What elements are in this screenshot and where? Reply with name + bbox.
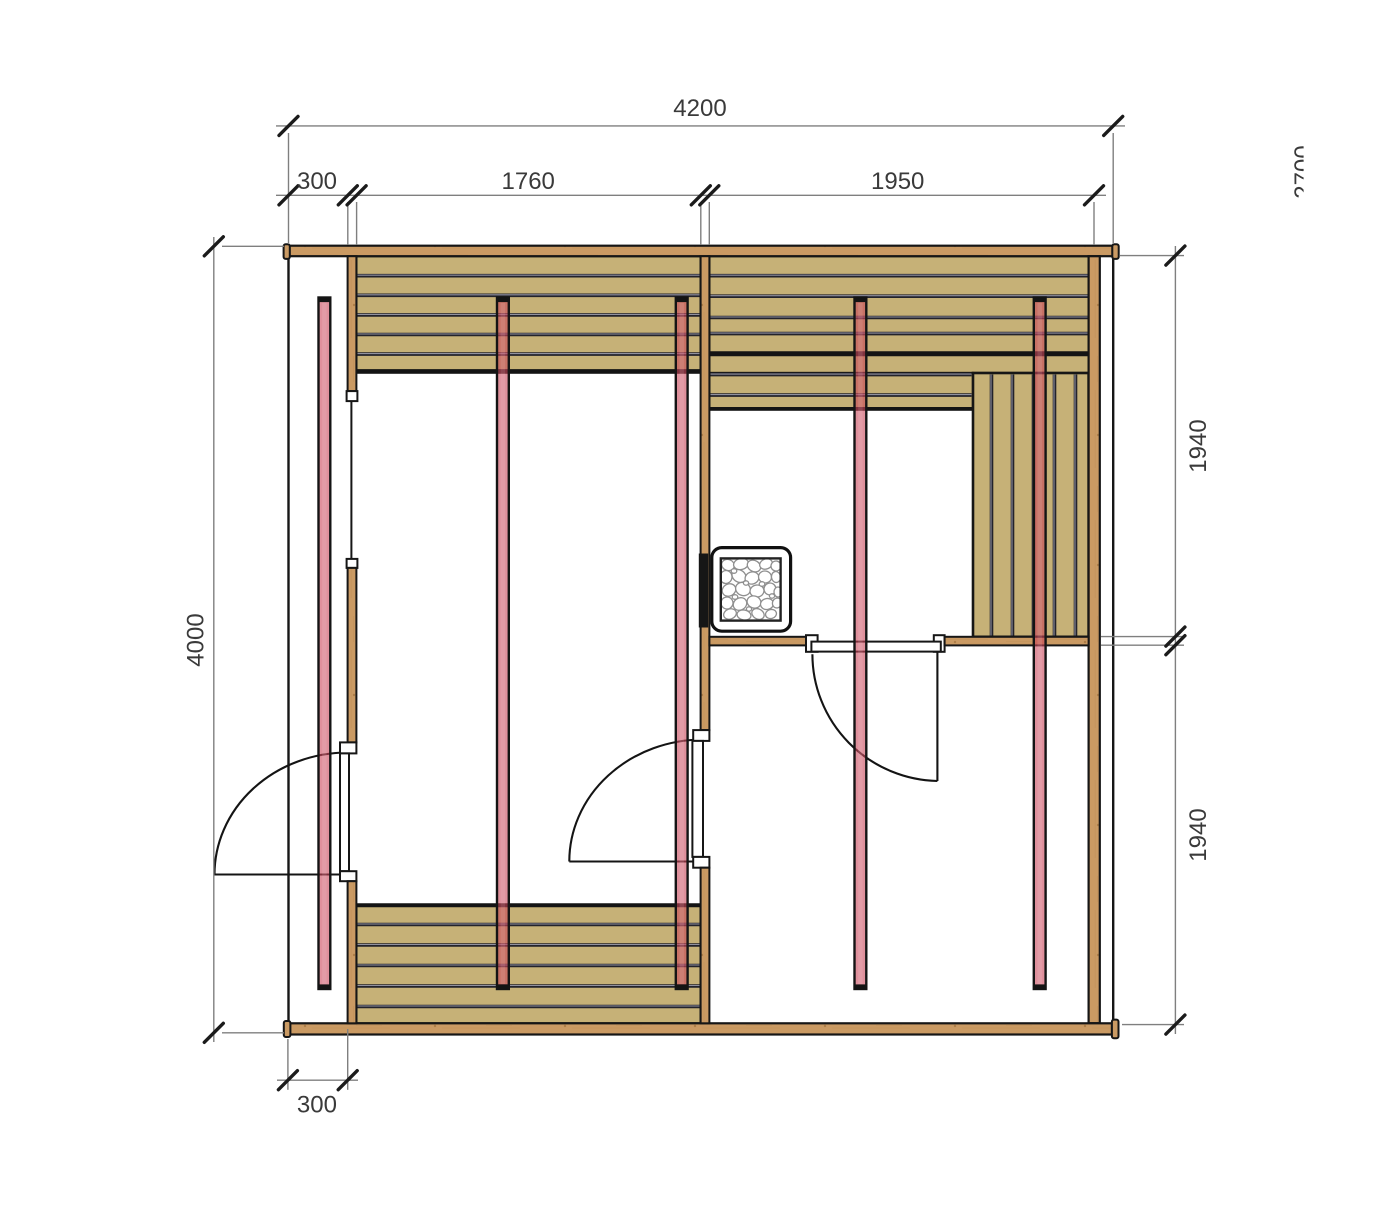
svg-text:300: 300 [297,1092,337,1119]
svg-text:300: 300 [297,168,337,195]
svg-text:4000: 4000 [183,613,210,666]
svg-text:4200: 4200 [673,95,726,122]
svg-text:1760: 1760 [502,168,555,195]
svg-text:1940: 1940 [1185,808,1212,861]
svg-text:1950: 1950 [871,168,924,195]
svg-text:1940: 1940 [1185,419,1212,472]
